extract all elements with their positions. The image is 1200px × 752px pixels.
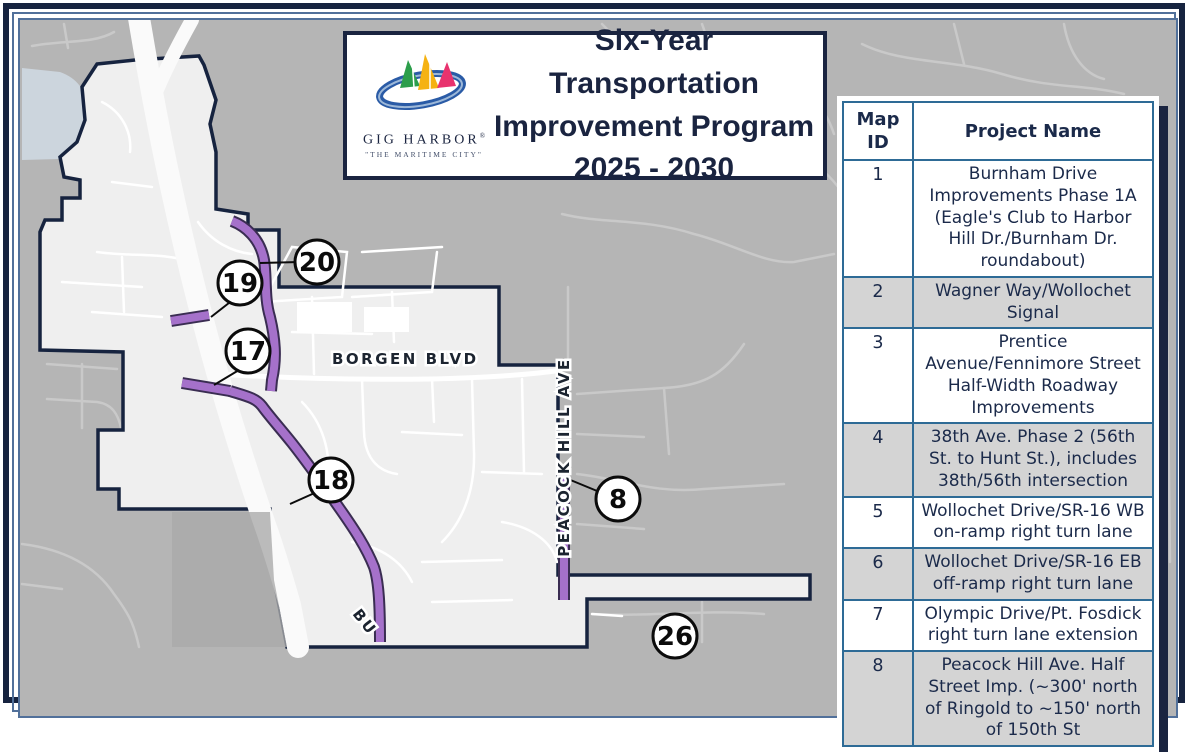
column-header-project-name: Project Name xyxy=(913,102,1153,160)
map-id-cell: 8 xyxy=(843,651,913,746)
title-line-2: Improvement Program xyxy=(493,106,815,149)
marker-17: 17 xyxy=(226,329,270,373)
project-name-cell: Burnham Drive Improvements Phase 1A (Eag… xyxy=(913,160,1153,277)
marker-26-number: 26 xyxy=(657,622,693,652)
table-row: 6 Wollochet Drive/SR-16 EB off-ramp righ… xyxy=(843,548,1153,600)
title-line-1: Six-Year Transportation xyxy=(493,20,815,105)
map-id-cell: 6 xyxy=(843,548,913,600)
table-row: 3 Prentice Avenue/Fennimore Street Half-… xyxy=(843,328,1153,423)
marker-18: 18 xyxy=(309,458,353,502)
project-name-cell: Prentice Avenue/Fennimore Street Half-Wi… xyxy=(913,328,1153,423)
marker-19: 19 xyxy=(218,261,262,305)
marker-8-number: 8 xyxy=(609,485,627,515)
logo-name: GIG HARBOR® xyxy=(355,132,493,149)
logo-registered-mark: ® xyxy=(480,132,485,140)
marker-19-number: 19 xyxy=(222,269,258,299)
marker-26: 26 xyxy=(653,614,697,658)
map-id-cell: 2 xyxy=(843,277,913,329)
map-id-cell: 4 xyxy=(843,423,913,496)
table-row: 4 38th Ave. Phase 2 (56th St. to Hunt St… xyxy=(843,423,1153,496)
table-row: 8 Peacock Hill Ave. Half Street Imp. (~3… xyxy=(843,651,1153,746)
project-table: Map ID Project Name 1 Burnham Drive Impr… xyxy=(842,101,1154,747)
peacock-hill-ave-label: PEACOCK HILL AVE xyxy=(555,357,573,556)
map-id-cell: 5 xyxy=(843,497,913,549)
map-id-cell: 3 xyxy=(843,328,913,423)
marker-8: 8 xyxy=(596,477,640,521)
table-row: 1 Burnham Drive Improvements Phase 1A (E… xyxy=(843,160,1153,277)
table-row: 2 Wagner Way/Wollochet Signal xyxy=(843,277,1153,329)
table-row: 7 Olympic Drive/Pt. Fosdick right turn l… xyxy=(843,600,1153,652)
project-name-cell: Peacock Hill Ave. Half Street Imp. (~300… xyxy=(913,651,1153,746)
project-name-cell: Olympic Drive/Pt. Fosdick right turn lan… xyxy=(913,600,1153,652)
logo-name-text: GIG HARBOR xyxy=(363,132,480,147)
title-line-3: 2025 - 2030 xyxy=(493,148,815,191)
gig-harbor-logo-art xyxy=(364,52,484,130)
logo-tagline: "THE MARITIME CITY" xyxy=(355,150,493,159)
vegetation-wedge xyxy=(172,512,287,647)
project-name-cell: Wagner Way/Wollochet Signal xyxy=(913,277,1153,329)
marker-20: 20 xyxy=(295,240,339,284)
project-name-cell: Wollochet Drive/SR-16 WB on-ramp right t… xyxy=(913,497,1153,549)
marker-17-number: 17 xyxy=(230,337,266,367)
column-header-map-id: Map ID xyxy=(843,102,913,160)
marker-18-number: 18 xyxy=(313,466,349,496)
table-row: 5 Wollochet Drive/SR-16 WB on-ramp right… xyxy=(843,497,1153,549)
project-name-cell: 38th Ave. Phase 2 (56th St. to Hunt St.)… xyxy=(913,423,1153,496)
poster-title: Six-Year Transportation Improvement Prog… xyxy=(493,20,815,190)
borgen-blvd-label: BORGEN BLVD xyxy=(332,350,479,368)
map-id-cell: 7 xyxy=(843,600,913,652)
project-table-panel: Map ID Project Name 1 Burnham Drive Impr… xyxy=(837,96,1159,752)
title-box: GIG HARBOR® "THE MARITIME CITY" Six-Year… xyxy=(343,31,827,180)
table-header-row: Map ID Project Name xyxy=(843,102,1153,160)
marker-20-number: 20 xyxy=(299,248,335,278)
project-name-cell: Wollochet Drive/SR-16 EB off-ramp right … xyxy=(913,548,1153,600)
gig-harbor-logo: GIG HARBOR® "THE MARITIME CITY" xyxy=(355,52,493,160)
map-id-cell: 1 xyxy=(843,160,913,277)
